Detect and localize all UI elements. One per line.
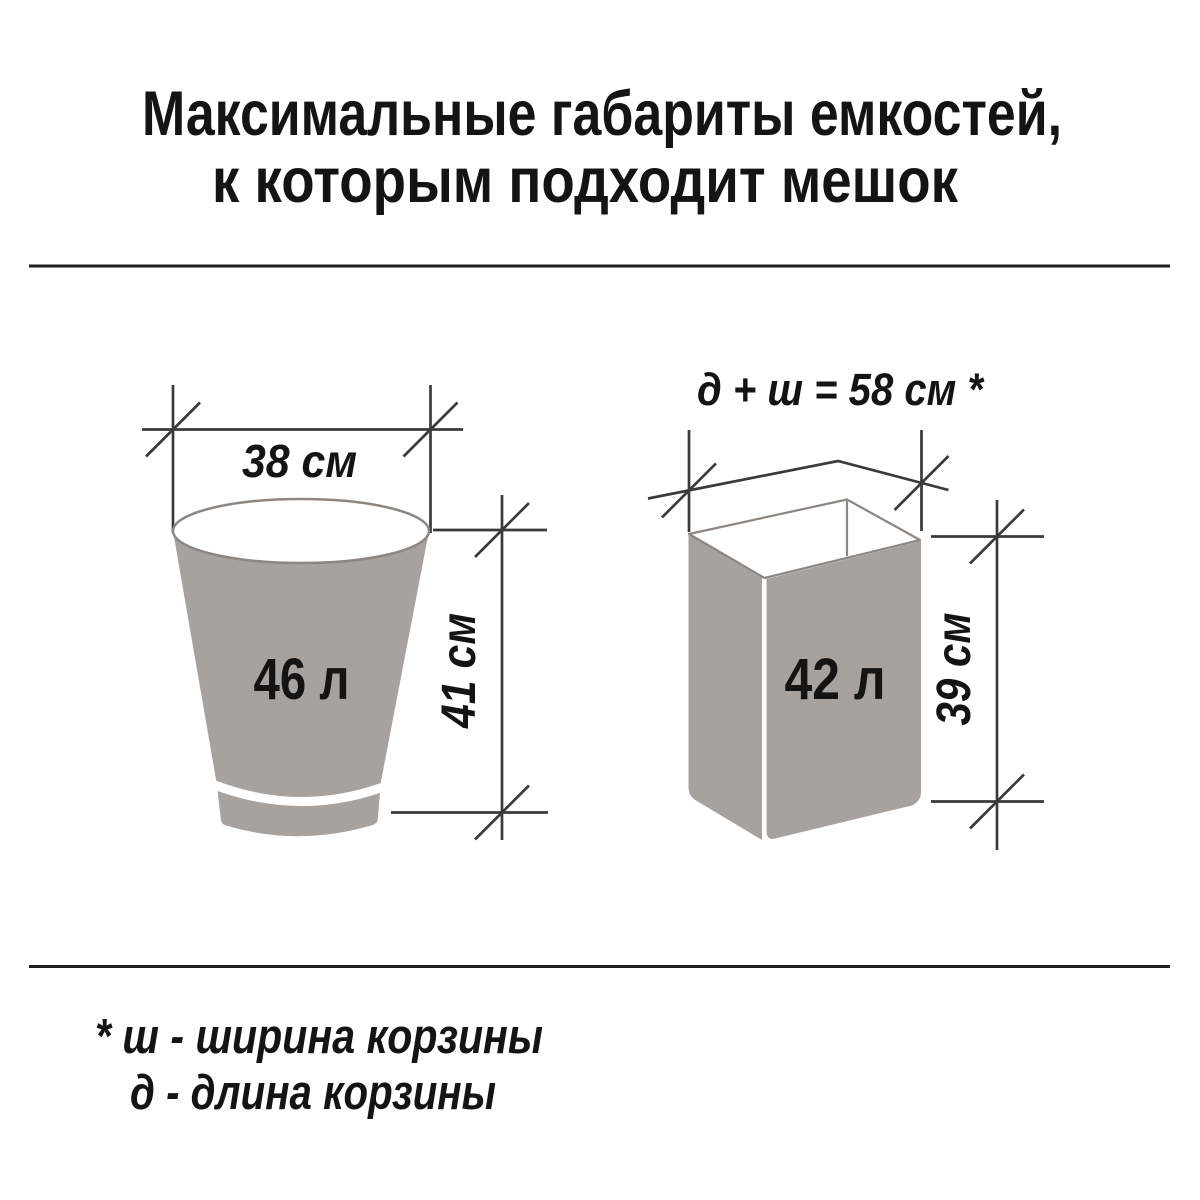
svg-text:38 см: 38 см bbox=[242, 435, 357, 487]
svg-text:Максимальные габариты емкостей: Максимальные габариты емкостей, bbox=[142, 79, 1062, 149]
svg-text:к которым подходит мешок: к которым подходит мешок bbox=[212, 146, 958, 216]
svg-text:42 л: 42 л bbox=[785, 647, 886, 712]
svg-text:41 см: 41 см bbox=[433, 613, 486, 729]
svg-text:д + ш = 58 см *: д + ш = 58 см * bbox=[697, 364, 985, 415]
svg-text:д - длина корзины: д - длина корзины bbox=[130, 1066, 496, 1120]
svg-text:46 л: 46 л bbox=[254, 647, 350, 712]
svg-text:39 см: 39 см bbox=[928, 613, 981, 726]
svg-text:* ш - ширина корзины: * ш - ширина корзины bbox=[95, 1010, 543, 1064]
